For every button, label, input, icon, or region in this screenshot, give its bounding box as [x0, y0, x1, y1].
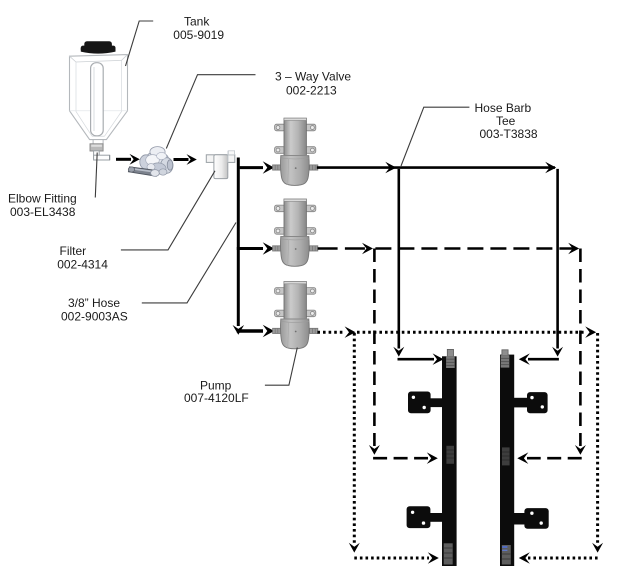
svg-text:Tee: Tee [496, 114, 516, 128]
svg-text:Hose Barb: Hose Barb [475, 101, 532, 115]
svg-text:003-EL3438: 003-EL3438 [10, 205, 76, 219]
svg-text:002-4314: 002-4314 [57, 257, 108, 271]
svg-text:002-9003AS: 002-9003AS [61, 310, 128, 324]
svg-text:002-2213: 002-2213 [286, 83, 337, 97]
svg-text:005-9019: 005-9019 [173, 28, 224, 42]
svg-text:003-T3838: 003-T3838 [480, 127, 538, 141]
svg-text:Filter: Filter [60, 244, 87, 258]
svg-text:3 – Way Valve: 3 – Way Valve [275, 70, 351, 84]
svg-text:Tank: Tank [184, 15, 210, 29]
svg-text:Elbow Fitting: Elbow Fitting [8, 191, 77, 205]
svg-text:3/8” Hose: 3/8” Hose [68, 296, 120, 310]
svg-text:007-4120LF: 007-4120LF [184, 391, 249, 405]
